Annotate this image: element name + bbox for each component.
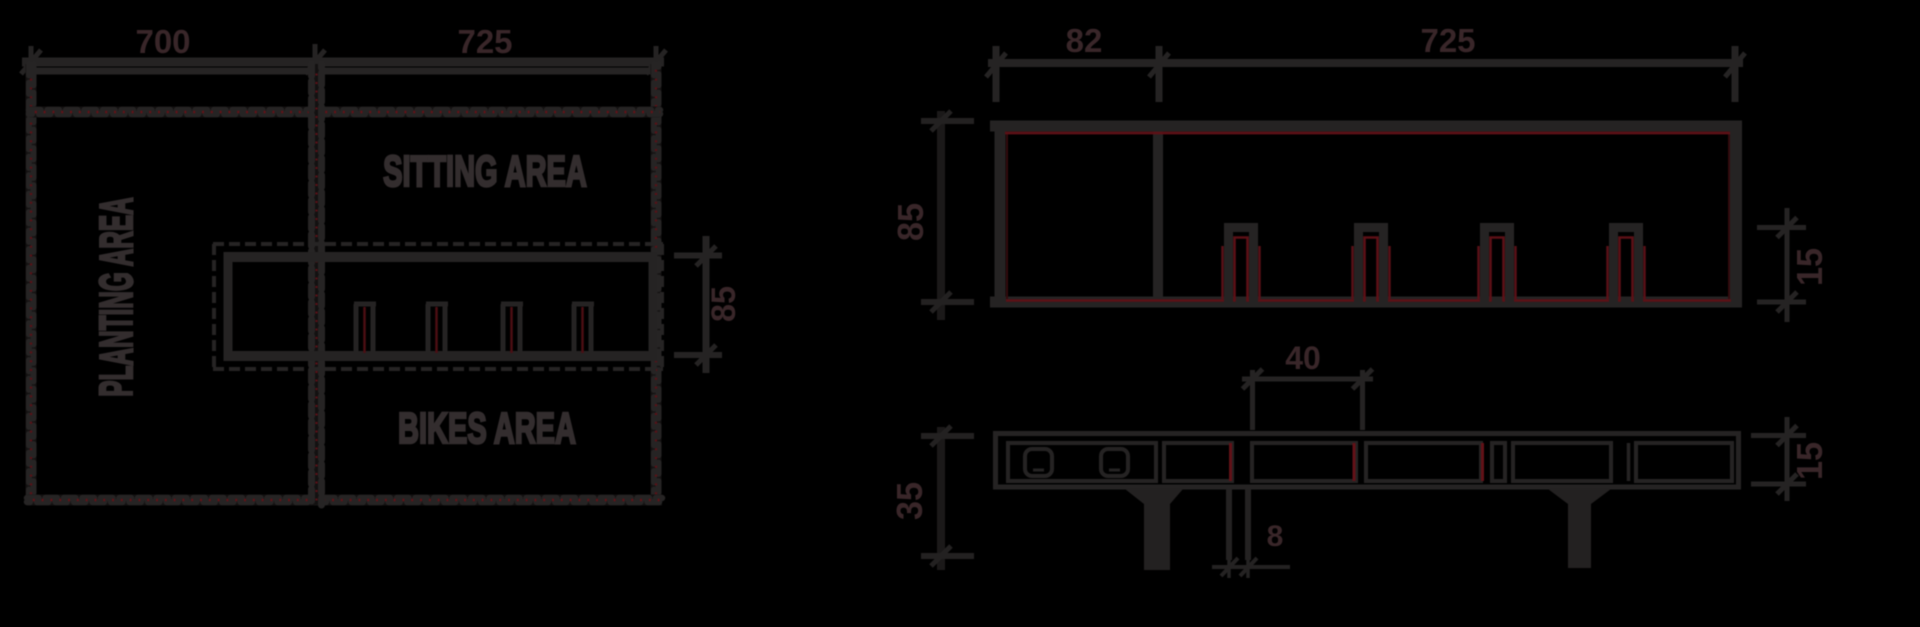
svg-text:15: 15 xyxy=(1790,442,1830,480)
svg-text:82: 82 xyxy=(1066,22,1103,59)
svg-text:15: 15 xyxy=(1790,248,1830,286)
svg-text:8: 8 xyxy=(1267,520,1284,553)
svg-text:BIKES AREA: BIKES AREA xyxy=(398,403,576,453)
svg-text:PLANTING AREA: PLANTING AREA xyxy=(91,197,142,396)
svg-text:35: 35 xyxy=(890,482,930,520)
svg-text:725: 725 xyxy=(1420,22,1475,59)
svg-text:725: 725 xyxy=(457,23,512,60)
svg-text:40: 40 xyxy=(1285,340,1321,376)
svg-text:85: 85 xyxy=(891,203,931,241)
svg-text:700: 700 xyxy=(135,23,190,60)
svg-text:SITTING AREA: SITTING AREA xyxy=(383,146,587,196)
svg-text:85: 85 xyxy=(705,286,743,322)
